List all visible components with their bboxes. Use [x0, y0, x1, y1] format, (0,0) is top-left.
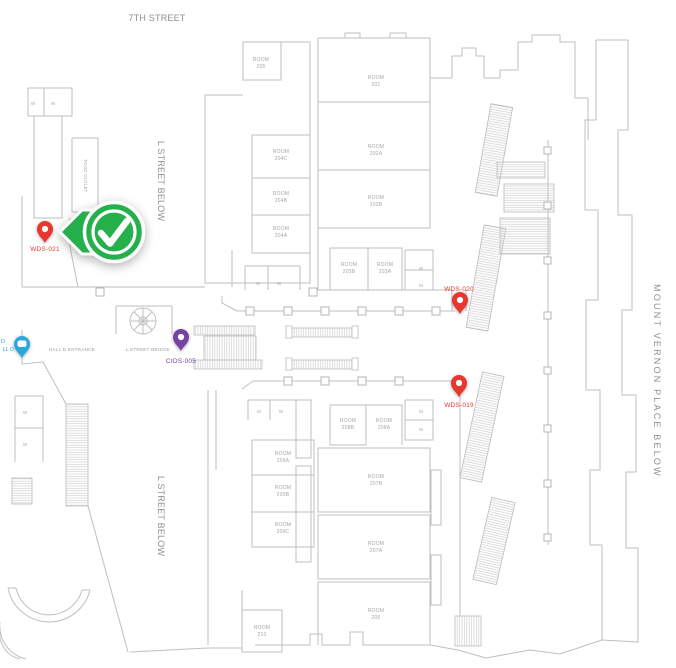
room-label-207A: ROOM207A	[368, 541, 384, 554]
pin-wds-019[interactable]	[451, 375, 467, 397]
escalators-and-stairs	[12, 104, 554, 646]
pin-label-cids-005: CIDS-005	[166, 358, 196, 365]
selected-check-badge[interactable]	[60, 203, 144, 262]
pin-hall-d[interactable]	[14, 336, 30, 358]
svg-text:M: M	[256, 281, 260, 286]
room-label-208A: ROOM208A	[376, 418, 392, 431]
room-label-205: ROOM205	[253, 57, 269, 70]
room-label-209A: ROOM209A	[275, 451, 291, 464]
street-label-l-street-below-lower: L STREET BELOW	[156, 476, 166, 557]
street-label-l-street-below-upper: L STREET BELOW	[156, 141, 166, 222]
svg-text:W: W	[31, 101, 36, 106]
pin-label-fragment-top: D	[1, 339, 5, 345]
room-label-201: ROOM201	[368, 75, 384, 88]
pin-label-wds-020: WDS-020	[444, 286, 474, 293]
room-label-209B: ROOM209B	[275, 485, 291, 498]
pin-label-wds-021: WDS-021	[30, 246, 60, 253]
room-label-206: ROOM206	[368, 608, 384, 621]
room-label-208B: ROOM208B	[340, 418, 356, 431]
street-label-mount-vernon-place: MOUNT VERNON PLACE BELOW	[652, 284, 662, 478]
pin-label-fragment-bottom: LL D	[3, 347, 14, 353]
room-label-209C: ROOM209C	[275, 522, 291, 535]
svg-text:W: W	[419, 427, 424, 432]
area-label-food-outlet: FOOD OUTLET	[83, 159, 88, 192]
pin-cids-005[interactable]	[173, 329, 189, 351]
svg-text:M: M	[51, 101, 55, 106]
pin-wds-021[interactable]	[37, 221, 53, 243]
area-label-hall-d-entrance: HALL D ENTRANCE	[49, 347, 95, 352]
svg-text:W: W	[23, 410, 28, 415]
floor-plan: 7TH STREET L STREET BELOW L STREET BELOW…	[0, 0, 676, 668]
room-label-210: ROOM210	[254, 625, 270, 638]
svg-text:M: M	[419, 409, 423, 414]
area-label-l-street-bridge: L STREET BRIDGE	[126, 347, 170, 352]
street-label-7th-street: 7TH STREET	[128, 13, 185, 23]
room-label-203A: ROOM203A	[377, 262, 393, 275]
pin-label-wds-019: WDS-019	[444, 402, 474, 409]
svg-text:W: W	[279, 409, 284, 414]
room-label-203B: ROOM203B	[341, 262, 357, 275]
svg-text:M: M	[419, 283, 423, 288]
room-label-202B: ROOM202B	[368, 195, 384, 208]
room-label-207B: ROOM207B	[368, 474, 384, 487]
room-label-204B: ROOM204B	[273, 191, 289, 204]
svg-text:M: M	[257, 409, 261, 414]
room-label-204C: ROOM204C	[273, 149, 289, 162]
room-label-204A: ROOM204A	[273, 226, 289, 239]
floorplan-walls	[0, 33, 638, 659]
room-label-202A: ROOM202A	[368, 144, 384, 157]
restroom-labels: WM MW WM WM MW MW	[23, 101, 424, 447]
svg-text:M: M	[23, 442, 27, 447]
